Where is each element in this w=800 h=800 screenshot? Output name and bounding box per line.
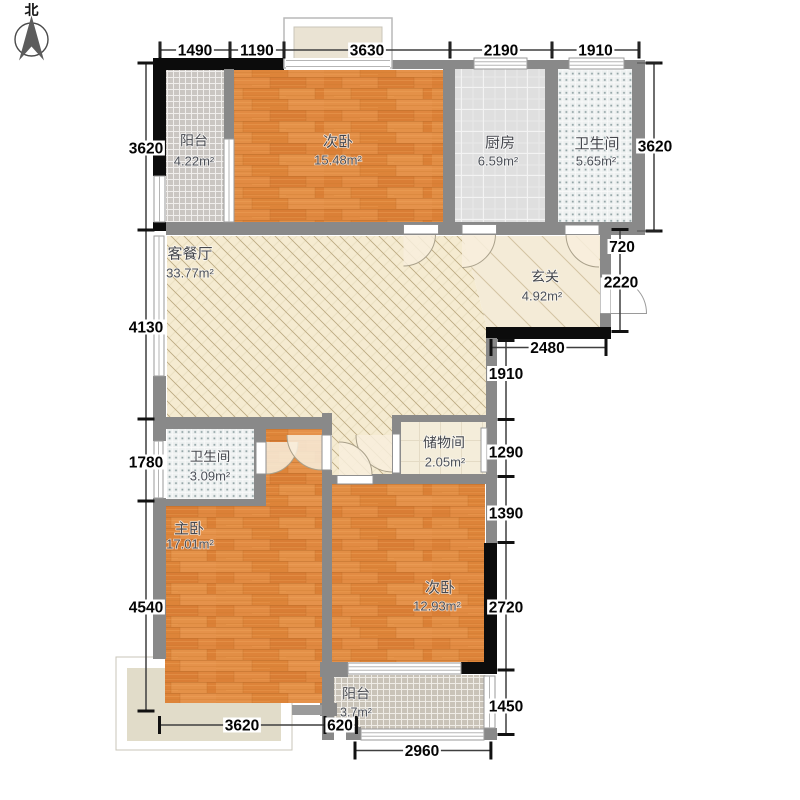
svg-text:3620: 3620 (225, 718, 259, 735)
svg-text:3620: 3620 (638, 139, 672, 156)
svg-text:4.92m²: 4.92m² (522, 289, 563, 304)
svg-text:2190: 2190 (484, 43, 518, 60)
svg-text:15.48m²: 15.48m² (314, 153, 362, 168)
svg-text:1290: 1290 (489, 445, 523, 462)
svg-text:5.65m²: 5.65m² (576, 154, 617, 169)
svg-text:3630: 3630 (350, 43, 384, 60)
svg-text:620: 620 (327, 718, 353, 735)
svg-text:4540: 4540 (129, 600, 163, 617)
svg-text:4.22m²: 4.22m² (174, 154, 215, 169)
svg-text:1490: 1490 (178, 43, 212, 60)
svg-text:12.93m²: 12.93m² (413, 599, 461, 614)
svg-text:17.01m²: 17.01m² (166, 537, 214, 552)
svg-text:2720: 2720 (489, 600, 523, 617)
svg-text:1910: 1910 (489, 366, 523, 383)
svg-text:1780: 1780 (129, 455, 163, 472)
svg-text:1910: 1910 (578, 43, 612, 60)
svg-text:4130: 4130 (129, 320, 163, 337)
svg-text:33.77m²: 33.77m² (166, 266, 214, 281)
svg-text:3.7m²: 3.7m² (340, 706, 372, 720)
svg-text:2960: 2960 (405, 743, 439, 760)
svg-text:2.05m²: 2.05m² (425, 455, 466, 470)
svg-text:3.09m²: 3.09m² (190, 469, 231, 484)
svg-text:1450: 1450 (489, 699, 523, 716)
svg-text:2220: 2220 (604, 275, 638, 292)
svg-text:1190: 1190 (240, 43, 274, 60)
svg-text:1390: 1390 (489, 506, 523, 523)
svg-text:720: 720 (609, 239, 635, 256)
svg-text:2480: 2480 (530, 340, 564, 357)
svg-text:6.59m²: 6.59m² (478, 154, 519, 169)
svg-text:3620: 3620 (129, 141, 163, 158)
